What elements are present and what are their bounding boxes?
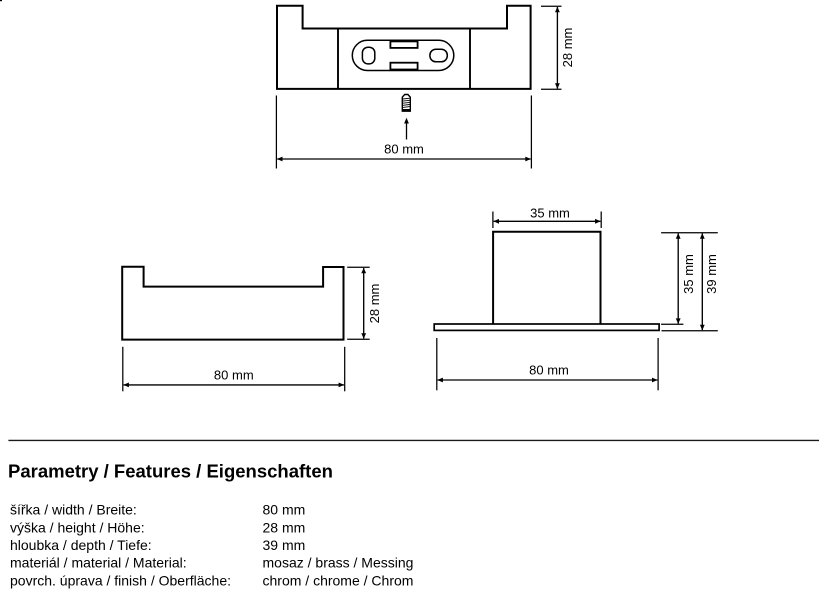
svg-text:39 mm: 39 mm: [704, 254, 719, 294]
svg-text:materiál / material / Material: materiál / material / Material:: [10, 555, 187, 571]
svg-text:hloubka / depth / Tiefe:: hloubka / depth / Tiefe:: [10, 537, 152, 553]
svg-text:28 mm: 28 mm: [367, 284, 382, 324]
svg-text:80 mm: 80 mm: [214, 367, 254, 382]
svg-text:80 mm: 80 mm: [384, 141, 424, 156]
svg-text:35 mm: 35 mm: [530, 205, 570, 220]
svg-text:šířka / width / Breite:: šířka / width / Breite:: [10, 502, 137, 518]
svg-text:výška / height / Höhe:: výška / height / Höhe:: [10, 519, 145, 535]
svg-text:mosaz / brass / Messing: mosaz / brass / Messing: [263, 555, 414, 571]
svg-text:povrch. úprava / finish / Ober: povrch. úprava / finish / Oberfläche:: [10, 572, 231, 588]
svg-text:80 mm: 80 mm: [529, 362, 569, 377]
svg-text:39 mm: 39 mm: [263, 537, 306, 553]
svg-text:35 mm: 35 mm: [681, 254, 696, 294]
svg-text:28 mm: 28 mm: [560, 28, 575, 68]
svg-text:80 mm: 80 mm: [263, 502, 306, 518]
svg-text:28 mm: 28 mm: [263, 519, 306, 535]
svg-text:chrom / chrome / Chrom: chrom / chrome / Chrom: [263, 572, 414, 588]
svg-text:Parametry / Features / Eigensc: Parametry / Features / Eigenschaften: [8, 461, 333, 482]
